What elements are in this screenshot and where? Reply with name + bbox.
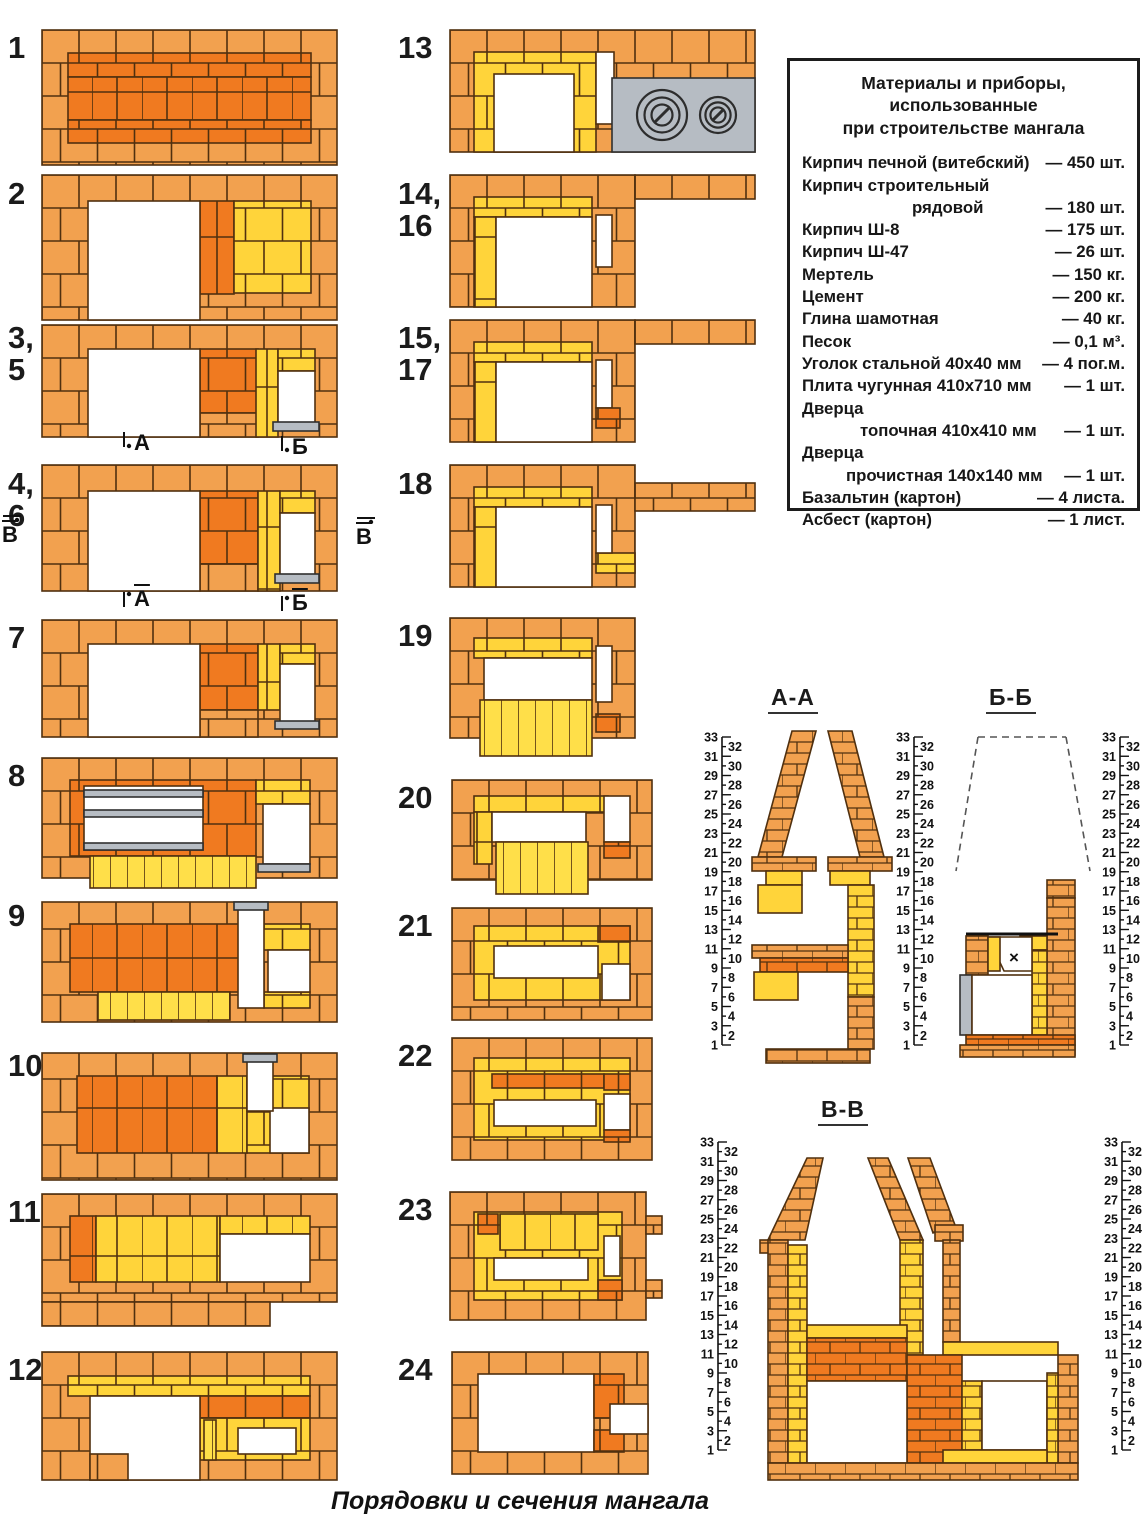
svg-text:22: 22 xyxy=(1126,836,1140,850)
svg-text:3: 3 xyxy=(1111,1424,1118,1438)
svg-text:5: 5 xyxy=(711,1000,718,1014)
svg-text:21: 21 xyxy=(700,1251,714,1265)
svg-text:16: 16 xyxy=(1126,894,1140,908)
svg-text:1: 1 xyxy=(1109,1039,1116,1053)
svg-text:25: 25 xyxy=(896,808,910,822)
svg-text:20: 20 xyxy=(1128,1261,1142,1275)
svg-text:19: 19 xyxy=(896,865,910,879)
material-quantity: — 150 кг. xyxy=(1053,264,1125,286)
brick-course-plan-7 xyxy=(42,896,337,1024)
svg-text:32: 32 xyxy=(724,1145,738,1159)
svg-text:23: 23 xyxy=(704,827,718,841)
material-item: Дверца xyxy=(802,398,1125,420)
svg-text:29: 29 xyxy=(704,769,718,783)
materials-title-line: Материалы и приборы, xyxy=(802,72,1125,94)
brick-course-plan-5 xyxy=(42,620,337,737)
cut-tick-icon xyxy=(278,434,291,456)
brick-course-plan-14 xyxy=(450,465,755,587)
cut-letter: В xyxy=(356,524,372,550)
course-label-9: 9 xyxy=(8,900,25,932)
course-label-14--16: 14, 16 xyxy=(398,178,441,242)
section-cut-marker-А: А xyxy=(120,430,150,456)
course-label-20: 20 xyxy=(398,782,432,814)
material-quantity: — 175 шт. xyxy=(1046,219,1126,241)
svg-text:1: 1 xyxy=(1111,1444,1118,1458)
material-name: топочная 410х410 мм xyxy=(802,420,1037,442)
brick-course-plan-17 xyxy=(452,908,657,1020)
material-name: Цемент xyxy=(802,286,864,308)
course-label-18: 18 xyxy=(398,468,432,500)
svg-text:6: 6 xyxy=(724,1395,731,1409)
material-item: Асбест (картон)— 1 лист. xyxy=(802,509,1125,531)
course-label-15--17: 15, 17 xyxy=(398,322,441,386)
svg-text:8: 8 xyxy=(1126,971,1133,985)
svg-text:5: 5 xyxy=(707,1405,714,1419)
material-name: Плита чугунная 410х710 мм xyxy=(802,375,1032,397)
svg-text:4: 4 xyxy=(724,1415,731,1429)
material-quantity: — 1 шт. xyxy=(1064,375,1125,397)
svg-text:20: 20 xyxy=(724,1261,738,1275)
svg-text:27: 27 xyxy=(1104,1193,1118,1207)
svg-text:33: 33 xyxy=(1104,1136,1118,1150)
brick-course-plan-2 xyxy=(42,175,337,320)
svg-text:8: 8 xyxy=(920,971,927,985)
brick-course-plan-18 xyxy=(452,1038,657,1160)
figure-caption: Порядовки и сечения мангала xyxy=(0,1487,1040,1516)
svg-text:10: 10 xyxy=(728,952,742,966)
svg-text:27: 27 xyxy=(1102,788,1116,802)
course-label-22: 22 xyxy=(398,1040,432,1072)
svg-text:5: 5 xyxy=(1109,1000,1116,1014)
section-cut-marker-Б: Б xyxy=(278,590,308,616)
svg-text:21: 21 xyxy=(896,846,910,860)
svg-text:31: 31 xyxy=(896,750,910,764)
section-cut-marker-Б: Б xyxy=(278,434,308,460)
svg-text:18: 18 xyxy=(728,875,742,889)
svg-text:31: 31 xyxy=(704,750,718,764)
svg-text:24: 24 xyxy=(1128,1222,1142,1236)
material-item: рядовой— 180 шт. xyxy=(802,197,1125,219)
material-item: прочистная 140х140 мм— 1 шт. xyxy=(802,465,1125,487)
svg-text:11: 11 xyxy=(1105,1347,1118,1361)
brick-course-plan-10 xyxy=(42,1352,337,1480)
svg-text:22: 22 xyxy=(724,1241,738,1255)
svg-text:10: 10 xyxy=(1126,952,1140,966)
svg-text:10: 10 xyxy=(1128,1357,1142,1371)
brick-course-plan-6 xyxy=(42,758,337,890)
svg-text:1: 1 xyxy=(707,1444,714,1458)
materials-title-line: при строительстве мангала xyxy=(802,117,1125,139)
svg-text:3: 3 xyxy=(903,1019,910,1033)
svg-text:14: 14 xyxy=(920,913,934,927)
svg-text:23: 23 xyxy=(1104,1232,1118,1246)
brick-course-plan-4 xyxy=(42,465,337,591)
material-name: Кирпич печной (витебский) xyxy=(802,152,1029,174)
svg-text:8: 8 xyxy=(724,1376,731,1390)
svg-text:15: 15 xyxy=(1102,904,1116,918)
course-label-8: 8 xyxy=(8,760,25,792)
svg-text:9: 9 xyxy=(707,1367,714,1381)
svg-text:29: 29 xyxy=(896,769,910,783)
material-item: Уголок стальной 40х40 мм— 4 пог.м. xyxy=(802,353,1125,375)
material-item: Кирпич Ш-47— 26 шт. xyxy=(802,241,1125,263)
svg-text:21: 21 xyxy=(1104,1251,1118,1265)
material-quantity: — 180 шт. xyxy=(1046,197,1126,219)
svg-text:1: 1 xyxy=(711,1039,718,1053)
svg-text:13: 13 xyxy=(700,1328,714,1342)
material-name: Уголок стальной 40х40 мм xyxy=(802,353,1022,375)
svg-text:9: 9 xyxy=(711,962,718,976)
svg-text:26: 26 xyxy=(728,798,742,812)
svg-text:6: 6 xyxy=(1126,990,1133,1004)
svg-text:25: 25 xyxy=(704,808,718,822)
cut-letter: Б xyxy=(292,590,308,616)
svg-text:32: 32 xyxy=(920,740,934,754)
svg-text:6: 6 xyxy=(920,990,927,1004)
materials-title: Материалы и приборы, использованные при … xyxy=(802,72,1125,139)
svg-text:20: 20 xyxy=(1126,856,1140,870)
svg-text:26: 26 xyxy=(920,798,934,812)
cut-tick-icon xyxy=(120,430,133,452)
svg-text:12: 12 xyxy=(1128,1338,1142,1352)
cut-tick-icon xyxy=(356,514,378,524)
svg-text:7: 7 xyxy=(903,981,910,995)
svg-text:3: 3 xyxy=(711,1019,718,1033)
svg-text:28: 28 xyxy=(724,1184,738,1198)
svg-text:27: 27 xyxy=(896,788,910,802)
svg-text:17: 17 xyxy=(896,885,910,899)
svg-text:29: 29 xyxy=(1102,769,1116,783)
svg-text:22: 22 xyxy=(920,836,934,850)
material-item: топочная 410х410 мм— 1 шт. xyxy=(802,420,1125,442)
svg-text:33: 33 xyxy=(1102,731,1116,745)
svg-text:3: 3 xyxy=(1109,1019,1116,1033)
material-item: Глина шамотная— 40 кг. xyxy=(802,308,1125,330)
svg-text:17: 17 xyxy=(1104,1290,1118,1304)
svg-text:23: 23 xyxy=(1102,827,1116,841)
course-ruler-1: 3332313029282726252423222120191817161514… xyxy=(698,731,746,1063)
svg-text:9: 9 xyxy=(1109,962,1116,976)
material-name: рядовой xyxy=(802,197,983,219)
course-label-12: 12 xyxy=(8,1354,42,1386)
material-item: Кирпич печной (витебский)— 450 шт. xyxy=(802,152,1125,174)
svg-text:8: 8 xyxy=(728,971,735,985)
svg-text:3: 3 xyxy=(707,1424,714,1438)
svg-text:27: 27 xyxy=(704,788,718,802)
course-label-21: 21 xyxy=(398,910,432,942)
brick-course-plan-16 xyxy=(452,780,657,898)
course-label-7: 7 xyxy=(8,622,25,654)
brick-course-plan-12 xyxy=(450,175,755,307)
course-label-1: 1 xyxy=(8,32,25,64)
material-quantity: — 1 шт. xyxy=(1064,420,1125,442)
svg-text:7: 7 xyxy=(711,981,718,995)
svg-text:15: 15 xyxy=(704,904,718,918)
svg-text:20: 20 xyxy=(920,856,934,870)
svg-text:11: 11 xyxy=(705,942,718,956)
material-name: Кирпич Ш-47 xyxy=(802,241,909,263)
svg-text:21: 21 xyxy=(1102,846,1116,860)
svg-text:2: 2 xyxy=(920,1029,927,1043)
material-quantity: — 40 кг. xyxy=(1062,308,1125,330)
svg-text:18: 18 xyxy=(1126,875,1140,889)
cut-letter: Б xyxy=(292,434,308,460)
svg-text:29: 29 xyxy=(1104,1174,1118,1188)
cut-tick-icon xyxy=(2,512,24,522)
course-label-23: 23 xyxy=(398,1194,432,1226)
svg-text:32: 32 xyxy=(728,740,742,754)
svg-text:15: 15 xyxy=(1104,1309,1118,1323)
svg-text:5: 5 xyxy=(903,1000,910,1014)
material-quantity: — 4 пог.м. xyxy=(1042,353,1125,375)
material-item: Кирпич строительный xyxy=(802,175,1125,197)
svg-text:12: 12 xyxy=(1126,933,1140,947)
svg-text:25: 25 xyxy=(700,1213,714,1227)
svg-text:17: 17 xyxy=(1102,885,1116,899)
svg-text:13: 13 xyxy=(1104,1328,1118,1342)
svg-text:16: 16 xyxy=(728,894,742,908)
masonry-diagram-page: Материалы и приборы, использованные при … xyxy=(0,0,1147,1529)
svg-text:18: 18 xyxy=(920,875,934,889)
section-title-bb: Б-Б xyxy=(986,684,1036,714)
svg-text:9: 9 xyxy=(903,962,910,976)
svg-text:14: 14 xyxy=(724,1318,738,1332)
svg-text:2: 2 xyxy=(728,1029,735,1043)
material-name: Песок xyxy=(802,331,851,353)
svg-text:1: 1 xyxy=(903,1039,910,1053)
svg-text:18: 18 xyxy=(1128,1280,1142,1294)
svg-text:6: 6 xyxy=(728,990,735,1004)
svg-text:4: 4 xyxy=(1126,1010,1133,1024)
material-item: Песок— 0,1 м³. xyxy=(802,331,1125,353)
svg-text:21: 21 xyxy=(704,846,718,860)
material-quantity: — 1 лист. xyxy=(1048,509,1125,531)
svg-text:19: 19 xyxy=(1104,1270,1118,1284)
svg-text:5: 5 xyxy=(1111,1405,1118,1419)
svg-text:6: 6 xyxy=(1128,1395,1135,1409)
course-ruler-4: 3332313029282726252423222120191817161514… xyxy=(694,1136,742,1468)
svg-text:16: 16 xyxy=(724,1299,738,1313)
material-quantity: — 0,1 м³. xyxy=(1053,331,1125,353)
materials-title-line: использованные xyxy=(802,94,1125,116)
material-name: Асбест (картон) xyxy=(802,509,932,531)
material-item: Дверца xyxy=(802,442,1125,464)
material-item: Базальтин (картон)— 4 листа. xyxy=(802,487,1125,509)
svg-text:2: 2 xyxy=(1128,1434,1135,1448)
cross-section-V-V xyxy=(755,1133,1100,1500)
cut-letter: А xyxy=(134,586,150,612)
svg-text:19: 19 xyxy=(700,1270,714,1284)
material-item: Мертель— 150 кг. xyxy=(802,264,1125,286)
cut-tick-icon xyxy=(120,586,133,608)
material-item: Кирпич Ш-8— 175 шт. xyxy=(802,219,1125,241)
cut-letter: В xyxy=(2,522,18,548)
svg-text:2: 2 xyxy=(724,1434,731,1448)
svg-text:13: 13 xyxy=(704,923,718,937)
course-label-3--5: 3, 5 xyxy=(8,322,34,386)
material-quantity: — 26 шт. xyxy=(1055,241,1125,263)
svg-text:14: 14 xyxy=(1128,1318,1142,1332)
course-label-24: 24 xyxy=(398,1354,432,1386)
svg-text:28: 28 xyxy=(728,779,742,793)
svg-text:23: 23 xyxy=(700,1232,714,1246)
brick-course-plan-19 xyxy=(450,1192,664,1320)
svg-text:24: 24 xyxy=(920,817,934,831)
material-item: Плита чугунная 410х710 мм— 1 шт. xyxy=(802,375,1125,397)
svg-text:2: 2 xyxy=(1126,1029,1133,1043)
course-label-11: 11 xyxy=(8,1196,41,1228)
svg-text:7: 7 xyxy=(707,1386,714,1400)
svg-text:16: 16 xyxy=(920,894,934,908)
svg-text:30: 30 xyxy=(724,1164,738,1178)
svg-text:33: 33 xyxy=(704,731,718,745)
cut-tick-icon xyxy=(278,590,291,612)
brick-course-plan-1 xyxy=(42,30,337,165)
svg-text:24: 24 xyxy=(724,1222,738,1236)
svg-text:17: 17 xyxy=(704,885,718,899)
svg-text:25: 25 xyxy=(1102,808,1116,822)
section-title-aa: А-А xyxy=(768,684,818,714)
material-name: Глина шамотная xyxy=(802,308,939,330)
svg-text:30: 30 xyxy=(1126,759,1140,773)
material-name: Кирпич строительный xyxy=(802,175,989,197)
svg-text:31: 31 xyxy=(700,1155,714,1169)
svg-text:30: 30 xyxy=(920,759,934,773)
svg-text:30: 30 xyxy=(1128,1164,1142,1178)
material-name: Дверца xyxy=(802,442,864,464)
svg-text:31: 31 xyxy=(1104,1155,1118,1169)
material-item: Цемент— 200 кг. xyxy=(802,286,1125,308)
materials-box: Материалы и приборы, использованные при … xyxy=(787,58,1140,511)
svg-text:23: 23 xyxy=(896,827,910,841)
cross-section-A-A xyxy=(752,731,892,1065)
material-name: прочистная 140х140 мм xyxy=(802,465,1043,487)
cross-section-B-B: × xyxy=(948,731,1100,1065)
svg-text:27: 27 xyxy=(700,1193,714,1207)
svg-text:28: 28 xyxy=(1128,1184,1142,1198)
svg-text:33: 33 xyxy=(700,1136,714,1150)
svg-text:31: 31 xyxy=(1102,750,1116,764)
svg-text:14: 14 xyxy=(728,913,742,927)
svg-text:19: 19 xyxy=(704,865,718,879)
material-name: Кирпич Ш-8 xyxy=(802,219,899,241)
svg-text:12: 12 xyxy=(728,933,742,947)
brick-course-plan-11 xyxy=(450,30,755,152)
svg-text:28: 28 xyxy=(920,779,934,793)
svg-text:26: 26 xyxy=(724,1203,738,1217)
material-quantity: — 1 шт. xyxy=(1064,465,1125,487)
brick-course-plan-20 xyxy=(452,1352,648,1474)
svg-text:8: 8 xyxy=(1128,1376,1135,1390)
course-ruler-3: 3332313029282726252423222120191817161514… xyxy=(1096,731,1144,1063)
material-quantity: — 450 шт. xyxy=(1046,152,1126,174)
svg-text:12: 12 xyxy=(724,1338,738,1352)
svg-text:32: 32 xyxy=(1128,1145,1142,1159)
svg-text:×: × xyxy=(1009,948,1019,967)
svg-text:4: 4 xyxy=(1128,1415,1135,1429)
material-name: Базальтин (картон) xyxy=(802,487,961,509)
svg-text:10: 10 xyxy=(920,952,934,966)
cut-letter: А xyxy=(134,430,150,456)
svg-text:25: 25 xyxy=(1104,1213,1118,1227)
svg-text:9: 9 xyxy=(1111,1367,1118,1381)
svg-text:32: 32 xyxy=(1126,740,1140,754)
section-cut-marker-А: А xyxy=(120,586,150,612)
svg-text:12: 12 xyxy=(920,933,934,947)
svg-text:17: 17 xyxy=(700,1290,714,1304)
svg-text:15: 15 xyxy=(896,904,910,918)
svg-text:24: 24 xyxy=(1126,817,1140,831)
svg-text:26: 26 xyxy=(1128,1203,1142,1217)
material-quantity: — 4 листа. xyxy=(1037,487,1125,509)
svg-text:11: 11 xyxy=(1103,942,1116,956)
svg-text:11: 11 xyxy=(701,1347,714,1361)
svg-text:30: 30 xyxy=(728,759,742,773)
svg-text:4: 4 xyxy=(920,1010,927,1024)
course-label-10: 10 xyxy=(8,1050,42,1082)
material-name: Мертель xyxy=(802,264,874,286)
material-name: Дверца xyxy=(802,398,864,420)
material-quantity: — 200 кг. xyxy=(1053,286,1125,308)
svg-text:22: 22 xyxy=(1128,1241,1142,1255)
svg-text:28: 28 xyxy=(1126,779,1140,793)
svg-text:20: 20 xyxy=(728,856,742,870)
svg-text:19: 19 xyxy=(1102,865,1116,879)
svg-text:22: 22 xyxy=(728,836,742,850)
course-label-2: 2 xyxy=(8,178,25,210)
svg-text:24: 24 xyxy=(728,817,742,831)
brick-course-plan-3 xyxy=(42,325,337,437)
svg-text:4: 4 xyxy=(728,1010,735,1024)
svg-text:10: 10 xyxy=(724,1357,738,1371)
svg-text:13: 13 xyxy=(896,923,910,937)
svg-text:26: 26 xyxy=(1126,798,1140,812)
brick-course-plan-13 xyxy=(450,320,755,442)
section-cut-marker-В: В xyxy=(2,512,24,548)
section-title-vv: В-В xyxy=(818,1096,868,1126)
brick-course-plan-9 xyxy=(42,1194,337,1326)
svg-text:7: 7 xyxy=(1111,1386,1118,1400)
svg-text:18: 18 xyxy=(724,1280,738,1294)
course-ruler-5: 3332313029282726252423222120191817161514… xyxy=(1098,1136,1146,1468)
materials-list: Кирпич печной (витебский)— 450 шт.Кирпич… xyxy=(802,152,1125,532)
svg-text:11: 11 xyxy=(897,942,910,956)
svg-text:7: 7 xyxy=(1109,981,1116,995)
svg-text:29: 29 xyxy=(700,1174,714,1188)
svg-text:15: 15 xyxy=(700,1309,714,1323)
svg-text:16: 16 xyxy=(1128,1299,1142,1313)
svg-text:14: 14 xyxy=(1126,913,1140,927)
course-label-19: 19 xyxy=(398,620,432,652)
brick-course-plan-8 xyxy=(42,1046,337,1180)
section-cut-marker-В: В xyxy=(356,514,378,550)
course-ruler-2: 3332313029282726252423222120191817161514… xyxy=(890,731,938,1063)
svg-text:13: 13 xyxy=(1102,923,1116,937)
course-label-13: 13 xyxy=(398,32,432,64)
svg-text:33: 33 xyxy=(896,731,910,745)
